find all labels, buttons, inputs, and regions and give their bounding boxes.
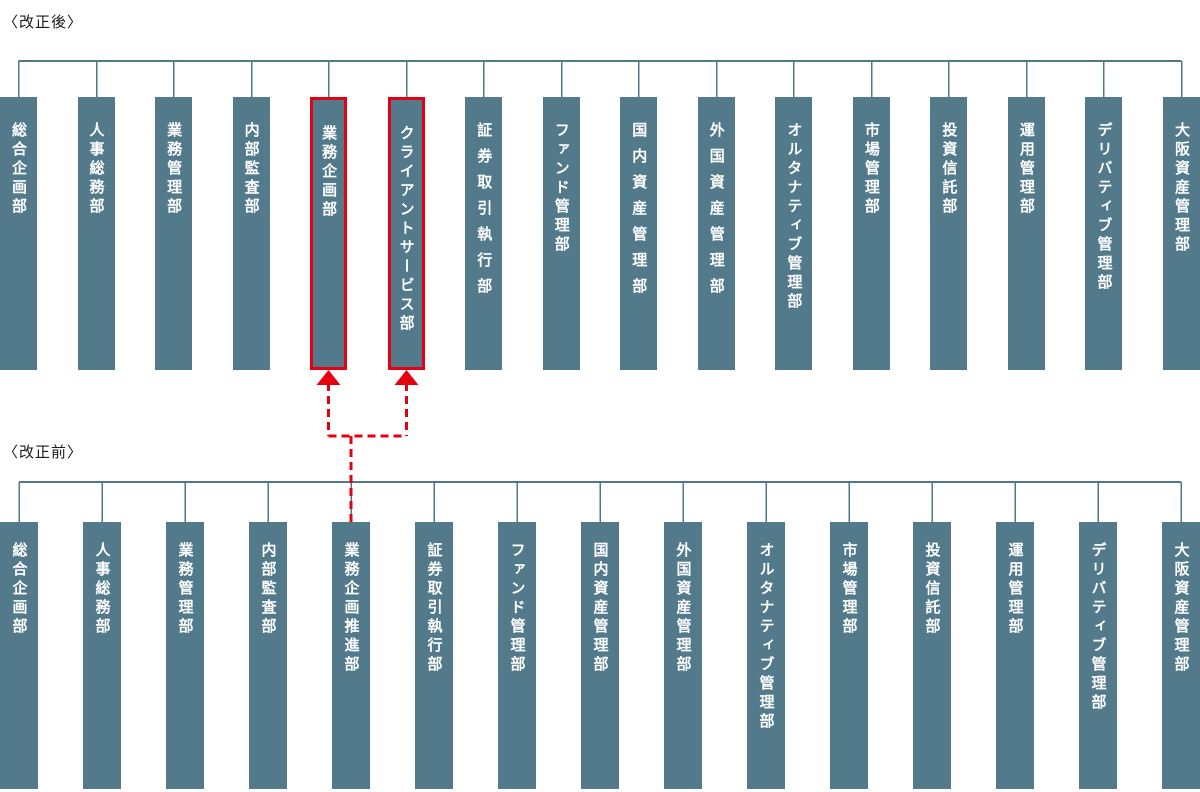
dept-box: 投資信託部 [913,522,951,789]
dept-label: 運用管理部 [1008,542,1023,637]
dept-label: クライアントサービス部 [399,125,414,334]
dept-box: 業務企画部 [310,97,347,370]
merge-arrow-icon [317,370,341,385]
before-row: 総合企画部人事総務部業務管理部内部監査部業務企画推進部証券取引執行部ファンド管理… [0,522,1200,789]
dept-label: 外国資産管理部 [709,122,724,304]
dept-label: 市場管理部 [842,542,857,637]
dept-box: 国内資産管理部 [620,97,657,370]
dept-label: オルタナティブ管理部 [759,542,774,732]
dept-box: ファンド管理部 [543,97,580,370]
dept-box: 市場管理部 [830,522,868,789]
dept-box: 大阪資産管理部 [1162,522,1200,789]
dept-box: 業務企画推進部 [332,522,370,789]
dept-box: 証券取引執行部 [465,97,502,370]
dept-box: 外国資産管理部 [664,522,702,789]
dept-label: 証券取引執行部 [427,542,442,675]
dept-box: オルタナティブ管理部 [747,522,785,789]
dept-label: 業務管理部 [178,542,193,637]
dept-box: 業務管理部 [166,522,204,789]
dept-box: 内部監査部 [249,522,287,789]
dept-label: 外国資産管理部 [676,542,691,675]
dept-box: 内部監査部 [233,97,270,370]
org-chart-page: 〈改正後〉 〈改正前〉 総合企画部人事総務部業務管理部内部監査部業務企画部クライ… [0,0,1200,792]
dept-label: 内部監査部 [244,122,259,217]
dept-label: 証券取引執行部 [476,122,491,304]
dept-box: 外国資産管理部 [698,97,735,370]
dept-label: 運用管理部 [1019,122,1034,217]
dept-label: ファンド管理部 [554,122,569,255]
dept-label: デリバティブ管理部 [1091,542,1106,713]
dept-box: ファンド管理部 [498,522,536,789]
dept-label: 国内資産管理部 [631,122,646,304]
dept-box: 証券取引執行部 [415,522,453,789]
dept-label: 大阪資産管理部 [1174,122,1189,255]
dept-label: 大阪資産管理部 [1174,542,1189,675]
dept-box: 運用管理部 [1008,97,1045,370]
dept-box: 運用管理部 [996,522,1034,789]
dept-label: 人事総務部 [89,122,104,217]
dept-label: 業務企画推進部 [344,542,359,675]
dept-box: オルタナティブ管理部 [775,97,812,370]
merge-arrow-icon [395,370,419,385]
dept-label: 内部監査部 [261,542,276,637]
dept-box: 人事総務部 [78,97,115,370]
dept-label: ファンド管理部 [510,542,525,675]
dept-box: デリバティブ管理部 [1085,97,1122,370]
dept-label: 投資信託部 [925,542,940,637]
dept-label: 投資信託部 [941,122,956,217]
dept-label: オルタナティブ管理部 [786,122,801,312]
dept-box: 総合企画部 [0,97,37,370]
dept-label: 総合企画部 [11,122,26,217]
dept-box: 市場管理部 [853,97,890,370]
dept-label: 市場管理部 [864,122,879,217]
dept-label: 業務企画部 [321,125,336,220]
dept-label: 国内資産管理部 [593,542,608,675]
dept-box: 人事総務部 [83,522,121,789]
after-row: 総合企画部人事総務部業務管理部内部監査部業務企画部クライアントサービス部証券取引… [0,97,1200,370]
dept-label: 業務管理部 [166,122,181,217]
dept-box: 総合企画部 [0,522,38,789]
dept-box: 業務管理部 [155,97,192,370]
dept-label: デリバティブ管理部 [1096,122,1111,293]
dept-box: 国内資産管理部 [581,522,619,789]
dept-label: 人事総務部 [95,542,110,637]
dept-box: デリバティブ管理部 [1079,522,1117,789]
dept-label: 総合企画部 [12,542,27,637]
dept-box: 投資信託部 [930,97,967,370]
dept-box: クライアントサービス部 [388,97,425,370]
dept-box: 大阪資産管理部 [1163,97,1200,370]
